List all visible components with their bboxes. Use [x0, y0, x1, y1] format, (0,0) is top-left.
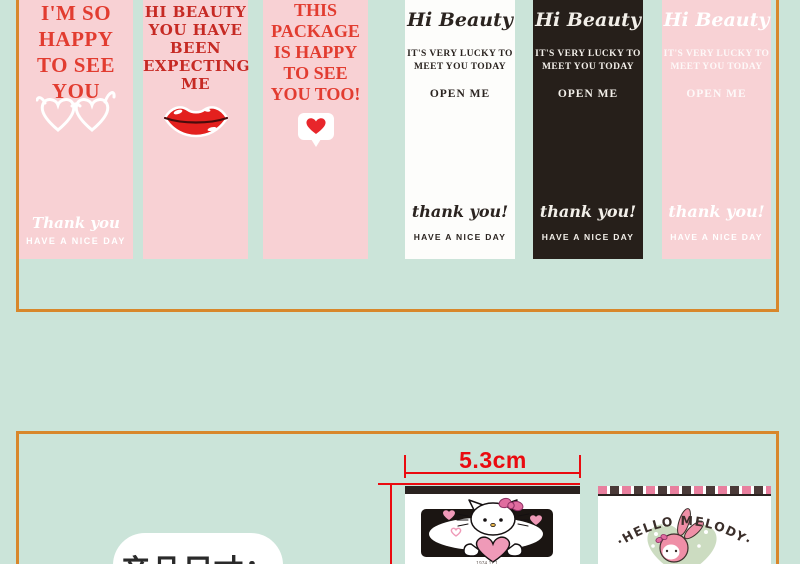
label-card-hi-beauty-white: Hi Beauty IT'S VERY LUCKY TO MEET YOU TO…: [405, 0, 515, 259]
hello-kitty-art: 1974.11.1: [405, 494, 580, 564]
open-me-label: OPEN ME: [662, 88, 771, 100]
lucky-subtitle: IT'S VERY LUCKY TO MEET YOU TODAY: [533, 48, 643, 74]
card-text: THIS PACKAGE IS HAPPY TO SEE YOU TOO!: [263, 0, 368, 105]
hi-beauty-title: Hi Beauty: [533, 9, 643, 31]
card-line: EXPECTING: [143, 57, 248, 75]
card-line: YOU HAVE: [143, 21, 248, 39]
open-me-label: OPEN ME: [405, 88, 515, 100]
thank-you-label: thank you!: [405, 202, 515, 221]
card-text: HI BEAUTY YOU HAVE BEEN EXPECTING ME: [143, 0, 248, 93]
subtitle-line: IT'S VERY LUCKY TO: [533, 48, 643, 61]
heart-chat-bubble-icon: [263, 111, 368, 149]
label-card-this-package: THIS PACKAGE IS HAPPY TO SEE YOU TOO!: [263, 0, 368, 259]
hello-melody-label-sample: ·HELLO MELODY·: [598, 486, 771, 564]
hi-beauty-title: Hi Beauty: [662, 9, 771, 31]
card-line: YOU TOO!: [263, 84, 368, 105]
have-a-nice-day: HAVE A NICE DAY: [405, 232, 515, 242]
card-line: TO SEE: [19, 52, 133, 78]
card-footer: Thank you HAVE A NICE DAY: [19, 214, 133, 246]
red-lips-icon: [143, 98, 248, 140]
open-me-label: OPEN ME: [533, 88, 643, 100]
card-line: PACKAGE: [263, 21, 368, 42]
label-card-hi-beauty-black: Hi Beauty IT'S VERY LUCKY TO MEET YOU TO…: [533, 0, 643, 259]
kitty-card-top-bar: [405, 486, 580, 494]
have-a-nice-day: HAVE A NICE DAY: [533, 232, 643, 242]
product-detail-image: I'M SO HAPPY TO SEE YOU Thank you HAVE A…: [0, 0, 800, 564]
card-line: ME: [143, 75, 248, 93]
card-line: HAPPY: [19, 26, 133, 52]
dimension-tick-right: [579, 455, 581, 478]
subtitle-line: IT'S VERY LUCKY TO: [662, 48, 771, 61]
card-line: HI BEAUTY: [143, 3, 248, 21]
thank-you-script: Thank you: [19, 214, 133, 232]
hello-kitty-label-sample: 1974.11.1: [405, 486, 580, 564]
width-dimension-line: [405, 472, 581, 474]
hi-beauty-title: Hi Beauty: [405, 9, 515, 31]
have-a-nice-day: HAVE A NICE DAY: [19, 236, 133, 246]
subtitle-line: MEET YOU TODAY: [533, 61, 643, 74]
subtitle-line: MEET YOU TODAY: [662, 61, 771, 74]
card-top-edge-line: [378, 483, 580, 485]
label-card-happy-to-see-you: I'M SO HAPPY TO SEE YOU Thank you HAVE A…: [19, 0, 133, 259]
have-a-nice-day: HAVE A NICE DAY: [662, 232, 771, 242]
product-size-label: 产品尺寸：: [113, 546, 283, 564]
lucky-subtitle: IT'S VERY LUCKY TO MEET YOU TODAY: [405, 48, 515, 74]
subtitle-line: IT'S VERY LUCKY TO: [405, 48, 515, 61]
thank-you-label: thank you!: [662, 202, 771, 221]
card-line: TO SEE: [263, 63, 368, 84]
height-dimension-line: [390, 484, 392, 564]
hello-melody-art: ·HELLO MELODY·: [598, 496, 771, 564]
product-size-bubble: 产品尺寸：: [113, 533, 283, 564]
label-card-hi-beauty-pink: Hi Beauty IT'S VERY LUCKY TO MEET YOU TO…: [662, 0, 771, 259]
lucky-subtitle: IT'S VERY LUCKY TO MEET YOU TODAY: [662, 48, 771, 74]
subtitle-line: MEET YOU TODAY: [405, 61, 515, 74]
card-line: I'M SO: [19, 0, 133, 26]
melody-checker-border: [598, 486, 771, 496]
dimension-tick-left: [404, 455, 406, 478]
card-line: IS HAPPY: [263, 42, 368, 63]
card-line: BEEN: [143, 39, 248, 57]
card-line: THIS: [263, 0, 368, 21]
label-card-hi-beauty-lips: HI BEAUTY YOU HAVE BEEN EXPECTING ME: [143, 0, 248, 259]
thank-you-label: thank you!: [533, 202, 643, 221]
width-dimension-label: 5.3cm: [405, 447, 581, 474]
